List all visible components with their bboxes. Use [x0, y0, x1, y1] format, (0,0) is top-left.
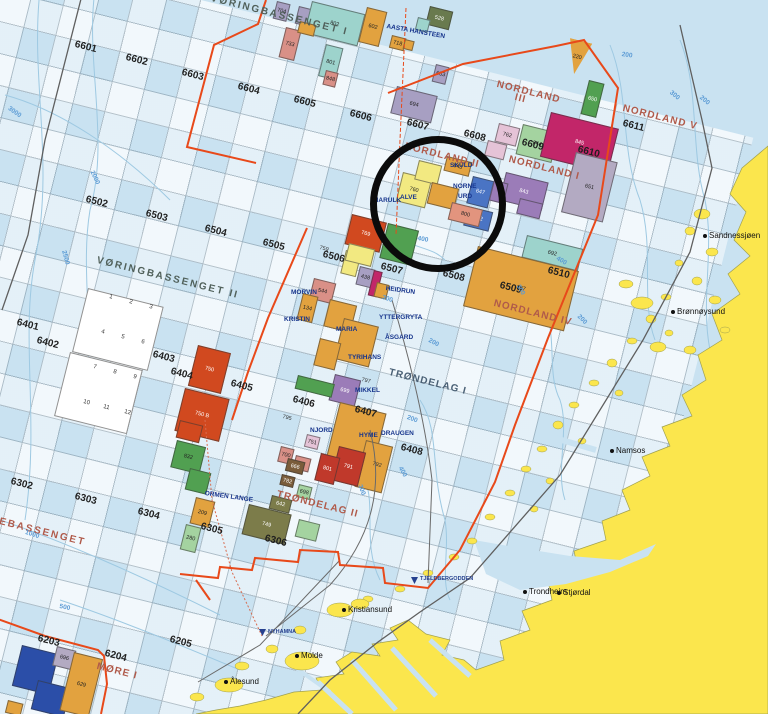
city-dot — [671, 310, 675, 314]
city-label: Molde — [295, 652, 323, 660]
city-dot — [610, 449, 614, 453]
field-label: NJORD — [310, 428, 333, 435]
field-label: MORVIN — [291, 290, 317, 297]
subblock-number: 10 — [83, 399, 91, 406]
facility-label: TJELDBERGODDEN — [420, 577, 473, 583]
city-label: Namsos — [610, 447, 645, 455]
field-label: ÅSGARD — [385, 335, 413, 342]
city-dot — [342, 608, 346, 612]
city-dot — [224, 680, 228, 684]
field-label: DRAUGEN — [381, 431, 414, 438]
field-label: MARIA — [336, 327, 357, 334]
contour-label: 200 — [621, 52, 633, 60]
highlight-circle-annotation — [370, 136, 506, 272]
offshore-license-map: 7048028017338486027185286536947626448456… — [0, 0, 768, 714]
city-dot — [523, 590, 527, 594]
field-label: MIKKEL — [355, 388, 380, 395]
facility-label: NYHAMNA — [268, 630, 296, 636]
field-label: TYRIHANS — [348, 355, 381, 362]
city-dot — [557, 591, 561, 595]
field-label: YTTERGRYTA — [379, 315, 422, 322]
city-label: Brønnøysund — [671, 308, 725, 316]
field-label: HYME — [359, 433, 378, 440]
city-dot — [703, 234, 707, 238]
city-label: Sandnessjøen — [703, 232, 760, 240]
city-dot — [295, 654, 299, 658]
city-label: Ålesund — [224, 678, 259, 686]
city-label: Kristiansund — [342, 606, 392, 614]
subblock-number: 12 — [124, 409, 132, 416]
city-label: Stjørdal — [557, 589, 591, 597]
field-label: KRISTIN — [284, 317, 310, 324]
